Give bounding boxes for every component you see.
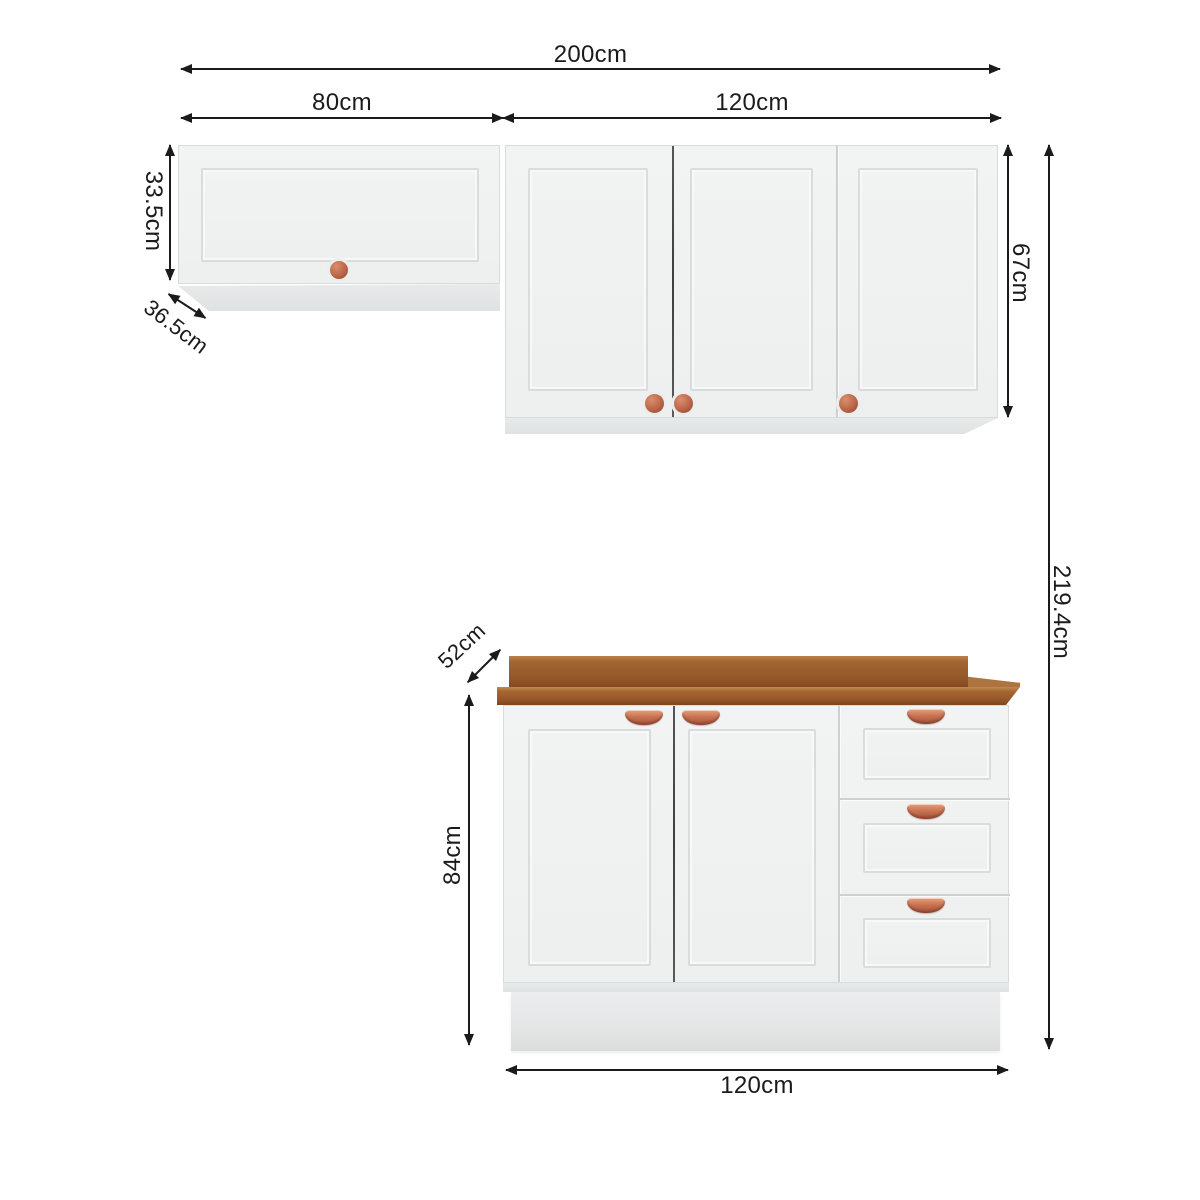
dim-label-total-height: 219.4cm [1049,565,1073,659]
drawer2-handle [907,804,945,819]
wall-cabinet-door2-knob [674,394,693,413]
dim-arrow-wall-left-width [181,117,503,119]
wall-cabinet-door1-panel [528,168,648,391]
wall-cabinet-right [505,145,998,418]
base-cabinet-ledge [503,983,1009,992]
base-cabinet-plinth [511,992,1000,1051]
drawer-separator-1 [840,798,1010,800]
kitchen-cabinet-dimension-diagram: 200cm 80cm 120cm 33.5cm 36.5cm 67cm 219.… [0,0,1200,1200]
base-door1-handle [625,710,663,725]
base-door2-handle [682,710,720,725]
dim-arrow-total-width [181,68,1000,70]
dim-label-wall-right-width: 120cm [503,91,1001,115]
dim-label-base-width: 120cm [506,1074,1008,1098]
dim-label-wall-left-depth: 36.5cm [140,296,212,358]
base-door1-panel [528,729,651,966]
dim-label-total-width: 200cm [181,43,1000,67]
wall-cabinet-door3-panel [858,168,978,391]
drawer1-panel [863,728,991,780]
dim-label-wall-right-height: 67cm [1008,243,1032,303]
drawer1-handle [907,709,945,724]
base-door-gap [673,706,675,982]
dim-arrow-base-width [506,1069,1008,1071]
countertop-slab [497,687,1020,705]
wall-cabinet-left-knob [330,261,348,279]
wall-cabinet-door-gap [672,146,674,417]
dim-label-wall-left-width: 80cm [181,91,503,115]
base-cabinet-body [503,705,1009,983]
drawer3-panel [863,918,991,968]
wall-cabinet-door2-panel [690,168,813,391]
wall-cabinet-door-gap2 [836,146,838,417]
wall-cabinet-right-bottom [505,418,998,434]
dim-arrow-wall-left-height [169,145,171,280]
base-door-drawer-divider [838,706,840,982]
drawer2-panel [863,823,991,873]
wall-cabinet-left-door-panel [201,168,479,262]
base-door2-panel [688,729,816,966]
wall-cabinet-door3-knob [839,394,858,413]
dim-arrow-counter-depth [467,649,501,683]
dim-arrow-base-height [468,695,470,1045]
wall-cabinet-left-bottom [178,284,500,311]
wall-cabinet-door1-knob [645,394,664,413]
drawer3-handle [907,898,945,913]
dim-label-base-height: 84cm [441,825,465,885]
countertop-surface [968,675,1020,687]
dim-arrow-wall-right-width [503,117,1001,119]
countertop-backsplash [509,656,968,687]
dim-label-wall-left-height: 33.5cm [141,171,165,252]
dim-label-counter-depth: 52cm [434,619,489,673]
drawer-separator-2 [840,894,1010,896]
wall-cabinet-left [178,145,500,284]
